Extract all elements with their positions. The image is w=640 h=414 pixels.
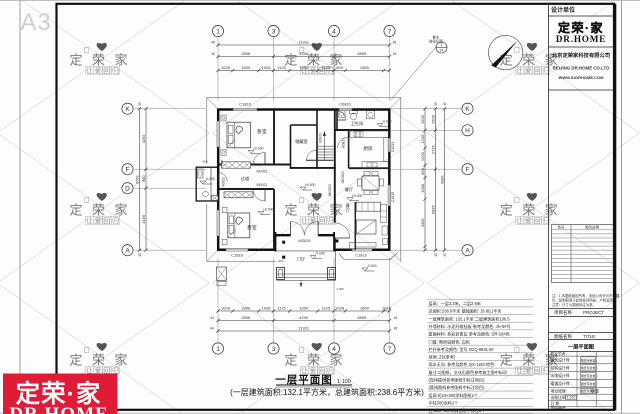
svg-text:(现场提供参考图纸中标注项目): (现场提供参考图纸中标注项目) <box>429 377 486 383</box>
svg-text:建筑设计师: 建筑设计师 <box>551 358 570 363</box>
svg-text:门厅: 门厅 <box>297 256 305 263</box>
svg-text:爱: 爱 <box>310 67 317 75</box>
svg-text:14: 14 <box>440 49 444 53</box>
svg-text:爱: 爱 <box>95 217 102 225</box>
svg-text:1800: 1800 <box>241 65 251 70</box>
svg-text:爱: 爱 <box>525 67 532 75</box>
svg-text:PROJECT: PROJECT <box>583 310 604 315</box>
svg-text:11911: 11911 <box>298 40 309 45</box>
svg-text:归: 归 <box>112 216 119 225</box>
svg-text:45: 45 <box>211 41 215 45</box>
svg-text:其他: ZD(参考): 其他: ZD(参考) <box>429 354 456 360</box>
svg-text:1028: 1028 <box>382 306 392 311</box>
svg-text:1.050: 1.050 <box>336 287 344 291</box>
svg-text:回: 回 <box>103 67 110 75</box>
svg-text:1026: 1026 <box>262 65 272 70</box>
svg-text:餐厅: 餐厅 <box>345 186 353 193</box>
svg-text:让: 让 <box>516 66 523 75</box>
svg-text:A: A <box>125 248 130 255</box>
svg-text:总面积:238.6平米 基础面积: 18.8(L)平米: 总面积:238.6平米 基础面积: 18.8(L)平米 <box>429 308 502 314</box>
svg-text:注意：尺寸以图纸标注为准。: 注意：尺寸以图纸标注为准。 <box>552 302 596 307</box>
svg-text:层高：一层3.2米，二层2.8米: 层高：一层3.2米，二层2.8米 <box>429 300 481 306</box>
svg-text:3: 3 <box>272 28 276 35</box>
svg-text:一层平面图: 一层平面图 <box>568 342 594 350</box>
svg-text:设计单位: 设计单位 <box>551 6 575 14</box>
svg-text:1500: 1500 <box>430 114 435 124</box>
svg-text:回: 回 <box>103 217 110 225</box>
svg-text:45: 45 <box>434 253 438 257</box>
svg-text:外墙材料: 水泥纤维挂板 参考及颜色: JH-5#号: 外墙材料: 水泥纤维挂板 参考及颜色: JH-5#号 <box>429 323 511 329</box>
svg-text:3306: 3306 <box>420 218 425 228</box>
svg-text:让: 让 <box>301 216 308 225</box>
svg-text:定荣家: 定荣家 <box>285 353 353 368</box>
svg-text:2735: 2735 <box>430 145 435 155</box>
svg-text:C1815: C1815 <box>355 253 368 258</box>
svg-text:44: 44 <box>210 327 214 331</box>
svg-text:定荣家: 定荣家 <box>500 203 568 218</box>
svg-text:厨房: 厨房 <box>363 145 373 152</box>
svg-text:1800: 1800 <box>241 306 251 311</box>
svg-text:过道: 过道 <box>241 175 250 182</box>
svg-text:BEIJING DR.HOME CO.LTD: BEIJING DR.HOME CO.LTD <box>553 66 610 71</box>
svg-text:2: 2 <box>441 43 443 47</box>
svg-text:1230: 1230 <box>420 134 425 144</box>
svg-text:C0815: C0815 <box>339 102 352 107</box>
svg-text:H: H <box>465 128 470 135</box>
svg-text:1800: 1800 <box>360 306 370 311</box>
svg-text:门窗: 断桥铝颜色: 白色: 门窗: 断桥铝颜色: 白色 <box>429 338 470 344</box>
svg-text:45: 45 <box>393 52 397 56</box>
svg-text:1028: 1028 <box>335 306 345 311</box>
svg-text:北京定荣家科技有限公司: 北京定荣家科技有限公司 <box>552 51 610 59</box>
svg-text:1125: 1125 <box>321 306 330 311</box>
svg-text:F: F <box>126 167 130 174</box>
svg-text:±0.000: ±0.000 <box>263 208 273 212</box>
svg-text:屋面材料: 多彩沥青瓦 参考及颜色: DR-10#色: 屋面材料: 多彩沥青瓦 参考及颜色: DR-10#色 <box>429 331 510 337</box>
svg-text:3856: 3856 <box>241 51 251 56</box>
svg-text:1950: 1950 <box>299 306 309 311</box>
svg-text:-0.600: -0.600 <box>367 264 377 268</box>
svg-text:-0.050: -0.050 <box>382 120 392 124</box>
svg-text:DR.HOME: DR.HOME <box>9 404 108 414</box>
svg-text:±0.000: ±0.000 <box>305 183 315 187</box>
svg-text:9881: 9881 <box>439 174 444 184</box>
svg-text:9661: 9661 <box>134 174 139 184</box>
svg-text:2655: 2655 <box>360 65 370 70</box>
svg-text:±0.000: ±0.000 <box>253 147 263 151</box>
svg-text:11911: 11911 <box>298 326 309 331</box>
svg-text:45: 45 <box>434 102 438 106</box>
svg-text:4156: 4156 <box>141 214 146 224</box>
svg-text:层高:6)24×300涂料图纸2个: 层高:6)24×300涂料图纸2个 <box>429 392 478 398</box>
svg-text:1: 1 <box>216 28 220 35</box>
svg-text:1028: 1028 <box>221 65 231 70</box>
svg-text:页码编号: 页码编号 <box>551 406 566 411</box>
svg-text:出图比例: 出图比例 <box>551 395 566 400</box>
svg-text:M0921: M0921 <box>319 133 323 143</box>
svg-text:7: 7 <box>388 346 392 353</box>
svg-text:K: K <box>125 106 130 113</box>
svg-text:让: 让 <box>516 366 523 375</box>
svg-text:水电设计师: 水电设计师 <box>551 373 570 378</box>
svg-text:1125: 1125 <box>321 65 330 70</box>
svg-text:45: 45 <box>138 253 142 257</box>
svg-text:让: 让 <box>86 216 93 225</box>
svg-text:图纸专用章: 图纸专用章 <box>581 357 596 362</box>
svg-text:储藏室: 储藏室 <box>295 138 308 145</box>
svg-text:900: 900 <box>141 175 146 182</box>
svg-text:7: 7 <box>388 28 392 35</box>
svg-text:合开: 合开 <box>557 225 565 230</box>
svg-text:归: 归 <box>327 216 334 225</box>
svg-text:暖通设计师: 暖通设计师 <box>551 381 570 386</box>
svg-text:C1816: C1816 <box>231 253 244 258</box>
svg-text:印、复制和用于此他任何用途，产权追责。: 印、复制和用于此他任何用途，产权追责。 <box>552 298 616 303</box>
svg-text:1500: 1500 <box>420 183 425 193</box>
svg-text:WWW.51DRHOME.COM: WWW.51DRHOME.COM <box>559 75 605 80</box>
svg-text:-0.030: -0.030 <box>205 177 215 181</box>
svg-text:45: 45 <box>443 102 447 106</box>
svg-text:回: 回 <box>534 67 541 75</box>
svg-text:专业负责: 专业负责 <box>551 351 566 356</box>
svg-text:回: 回 <box>534 367 541 375</box>
svg-text:M0921: M0921 <box>257 170 268 174</box>
svg-text:C1816: C1816 <box>239 102 252 107</box>
svg-text:审 定: 审 定 <box>591 389 600 394</box>
svg-text:TITLE: TITLE <box>583 334 595 339</box>
svg-text:让: 让 <box>516 216 523 225</box>
svg-text:M2025: M2025 <box>298 238 311 243</box>
svg-text:1125: 1125 <box>277 306 286 311</box>
svg-text:800: 800 <box>336 65 343 70</box>
svg-text:1028: 1028 <box>262 306 272 311</box>
svg-text:M0921: M0921 <box>257 183 268 187</box>
svg-text:45: 45 <box>394 327 398 331</box>
svg-text:定荣家: 定荣家 <box>70 203 138 218</box>
svg-text:备注:1)图纸，文化石颜色参考施工图中标项: 备注:1)图纸，文化石颜色参考施工图中标项 <box>429 369 507 375</box>
svg-text:DR.HOME: DR.HOME <box>556 34 606 44</box>
svg-text:44: 44 <box>210 316 214 320</box>
svg-text:卫生间: 卫生间 <box>351 120 364 127</box>
svg-text:让: 让 <box>86 66 93 75</box>
svg-text:一层平面图: 一层平面图 <box>275 374 333 386</box>
svg-text:项目经理: 项目经理 <box>551 389 566 394</box>
svg-text:A: A <box>465 248 470 255</box>
svg-text:M0921: M0921 <box>222 177 226 187</box>
svg-text:厅: 厅 <box>346 208 350 213</box>
svg-text:±0.000: ±0.000 <box>352 194 362 198</box>
svg-text:图纸专用章: 图纸专用章 <box>581 373 596 378</box>
svg-text:1020: 1020 <box>220 159 224 166</box>
svg-text:项目名称: 项目名称 <box>554 309 572 316</box>
svg-text:图纸专用章: 图纸专用章 <box>581 381 596 386</box>
svg-text:图纸专用章: 图纸专用章 <box>581 365 596 370</box>
svg-text:结构设计师: 结构设计师 <box>551 365 570 370</box>
svg-text:DK0223: DK0223 <box>328 184 332 196</box>
svg-text:1125: 1125 <box>277 65 286 70</box>
svg-text:1:100: 1:100 <box>337 379 351 385</box>
svg-text:3855: 3855 <box>357 315 367 320</box>
svg-text:45: 45 <box>393 41 397 45</box>
svg-text:1:100: 1:100 <box>567 396 576 400</box>
svg-text:爱: 爱 <box>525 217 532 225</box>
svg-text:1028: 1028 <box>221 306 231 311</box>
svg-text:4: 4 <box>332 28 336 35</box>
svg-text:4200: 4200 <box>299 51 309 56</box>
svg-text:45: 45 <box>443 253 447 257</box>
svg-text:定荣家: 定荣家 <box>70 353 138 368</box>
svg-text:-0.030: -0.030 <box>315 252 325 256</box>
svg-text:注：1 本图纸版权所有，未经公司许可不得翻: 注：1 本图纸版权所有，未经公司许可不得翻 <box>552 293 620 298</box>
svg-text:3: 3 <box>272 346 276 353</box>
svg-text:中柱300涂料2个: 中柱300涂料2个 <box>429 399 459 405</box>
svg-text:900: 900 <box>202 160 207 164</box>
svg-text:归: 归 <box>112 66 119 75</box>
svg-text:定荣家: 定荣家 <box>70 53 138 68</box>
svg-text:900: 900 <box>278 259 283 263</box>
svg-text:图纸名称: 图纸名称 <box>554 333 572 340</box>
svg-text:卧室: 卧室 <box>257 128 267 135</box>
svg-text:4255: 4255 <box>141 134 146 144</box>
svg-text:K: K <box>465 106 470 113</box>
svg-text:爱: 爱 <box>95 67 102 75</box>
svg-text:C1815: C1815 <box>391 192 395 203</box>
svg-text:DK0923: DK0923 <box>341 171 345 183</box>
svg-text:3856: 3856 <box>241 315 251 320</box>
svg-text:5836: 5836 <box>430 204 435 214</box>
svg-text:注:62D+300涂料图纸中标注2个: 注:62D+300涂料图纸中标注2个 <box>429 407 486 413</box>
svg-text:45: 45 <box>211 52 215 56</box>
svg-text:A3: A3 <box>20 9 51 36</box>
svg-text:1950: 1950 <box>299 65 309 70</box>
svg-text:栏杆参考及颜色: 型号 ZGQ 9931 6#: 栏杆参考及颜色: 型号 ZGQ 9931 6# <box>429 346 495 352</box>
svg-text:(一层建筑面积:132.1平方米，总建筑面积:238.6平方: (一层建筑面积:132.1平方米，总建筑面积:238.6平方米) <box>230 387 424 397</box>
svg-text:日 期: 日 期 <box>551 401 560 406</box>
svg-text:F: F <box>466 167 470 174</box>
svg-text:1: 1 <box>216 346 220 353</box>
svg-text:D: D <box>125 186 130 193</box>
svg-text:M0921: M0921 <box>342 138 346 148</box>
svg-text:4: 4 <box>332 346 336 353</box>
svg-text:卧室: 卧室 <box>247 224 257 231</box>
svg-text:定荣·家: 定荣·家 <box>558 20 604 35</box>
svg-text:修改说明: 修改说明 <box>585 225 600 230</box>
svg-text:850: 850 <box>420 167 425 174</box>
svg-text:45: 45 <box>138 102 142 106</box>
svg-text:C1513: C1513 <box>391 142 395 153</box>
svg-text:1200: 1200 <box>420 151 425 161</box>
svg-text:定荣家: 定荣家 <box>285 203 353 218</box>
svg-text:1500: 1500 <box>420 114 425 124</box>
svg-text:回: 回 <box>534 217 541 225</box>
svg-text:(管线图纸参考图纸中标注项目): (管线图纸参考图纸中标注项目) <box>429 384 486 390</box>
svg-text:3855: 3855 <box>357 51 367 56</box>
svg-text:45: 45 <box>394 316 398 320</box>
svg-text:雨水天沟: 参考及颜色 QX-1183 棕色: 雨水天沟: 参考及颜色 QX-1183 棕色 <box>429 361 495 367</box>
svg-text:回: 回 <box>318 217 325 225</box>
svg-text:4200: 4200 <box>299 315 309 320</box>
svg-text:一层建筑面积: 132.1平米 二层建筑面积106.5: 一层建筑面积: 132.1平米 二层建筑面积106.5 <box>429 315 511 321</box>
